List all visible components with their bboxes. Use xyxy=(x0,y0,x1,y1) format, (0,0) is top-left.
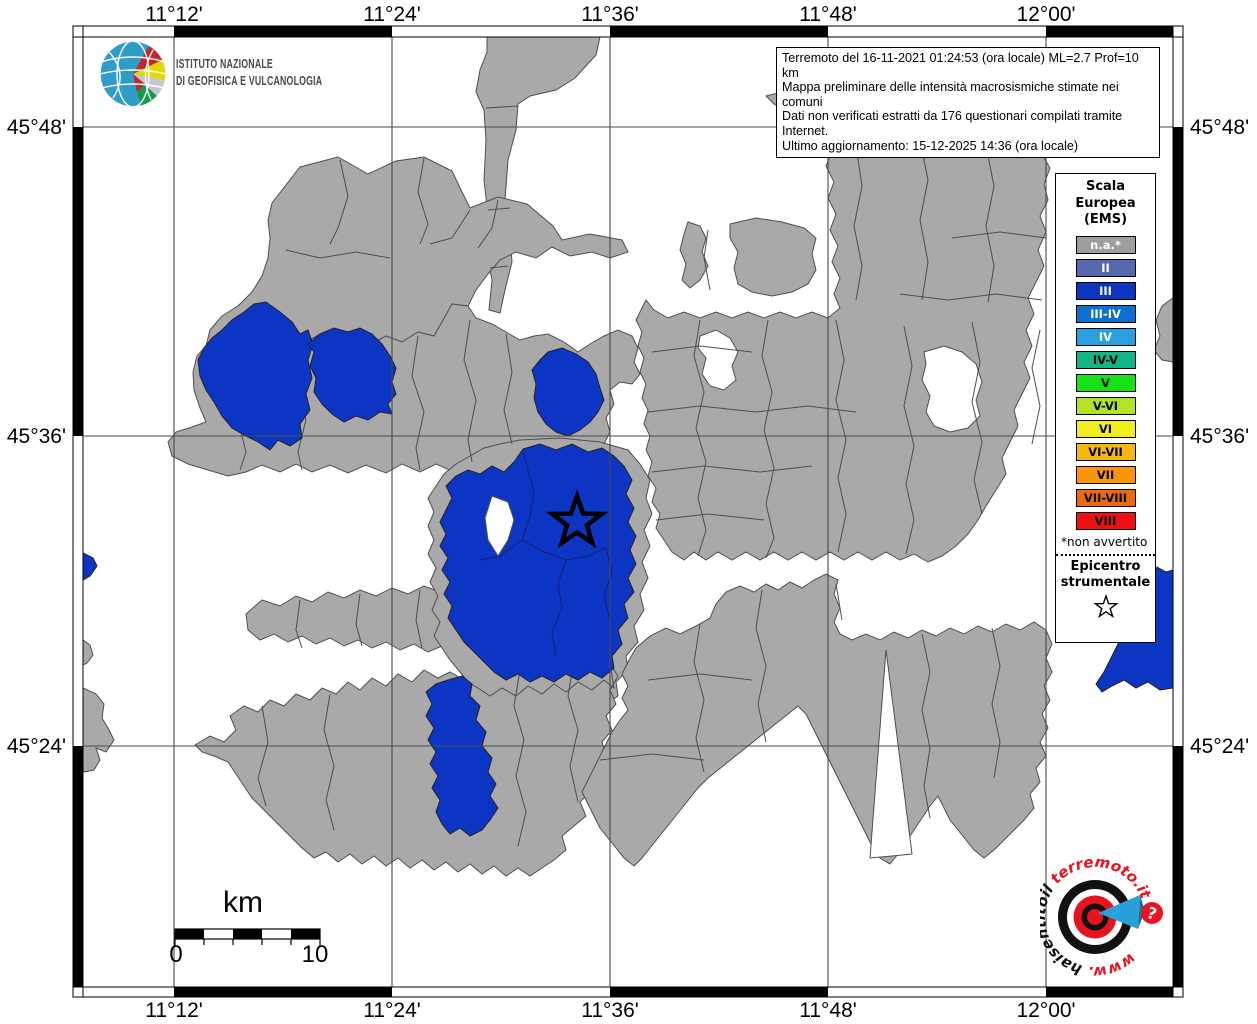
legend-swatch: V xyxy=(1076,374,1136,392)
legend-swatch: IV-V xyxy=(1076,351,1136,369)
municipality-shape xyxy=(1154,298,1173,362)
legend-title-line: Europea xyxy=(1056,196,1155,213)
left-axis-label: 45°36' xyxy=(2,425,66,449)
legend-swatch: III xyxy=(1076,282,1136,300)
right-axis-label: 45°48' xyxy=(1190,116,1249,140)
scale-bar xyxy=(175,929,320,946)
right-axis-label: 45°24' xyxy=(1190,735,1249,759)
legend-swatches: n.a.* II III III-IV IV IV-V V V-VI VI VI… xyxy=(1056,236,1155,530)
legend-swatch: n.a.* xyxy=(1076,236,1136,254)
municipality-shape xyxy=(83,688,114,772)
top-axis-label: 11°24' xyxy=(363,3,421,27)
municipality-intensity-iii xyxy=(440,444,636,682)
municipality-shapes xyxy=(83,37,1173,876)
watermark-www: www. xyxy=(1087,950,1139,982)
municipality-shape xyxy=(730,218,816,296)
ingv-globe-icon xyxy=(99,40,167,108)
ingv-name-line1: ISTITUTO NAZIONALE xyxy=(176,56,322,73)
earthquake-intensity-map-screenshot: 11°12' 11°24' 11°36' 11°48' 12°00' 11°12… xyxy=(0,0,1257,1024)
legend-swatch: VI-VII xyxy=(1076,443,1136,461)
legend-swatch: VIII xyxy=(1076,512,1136,530)
epicenter-legend-label: Epicentro strumentale xyxy=(1056,559,1155,591)
legend-swatch: VII xyxy=(1076,466,1136,484)
ingv-name-line2: DI GEOFISICA E VULCANOLOGIA xyxy=(176,73,322,90)
left-axis-label: 45°48' xyxy=(2,116,66,140)
municipality-shape xyxy=(83,640,93,665)
ingv-logo: ISTITUTO NAZIONALE DI GEOFISICA E VULCAN… xyxy=(99,40,385,108)
epicenter-legend-line: Epicentro xyxy=(1056,559,1155,575)
top-axis-label: 11°48' xyxy=(799,3,857,27)
legend-swatch: VII-VIII xyxy=(1076,489,1136,507)
legend-swatch: IV xyxy=(1076,328,1136,346)
bottom-axis-label: 11°12' xyxy=(145,999,203,1023)
legend-footnote: *non avvertito xyxy=(1061,535,1155,549)
scale-bar-end-label: 10 xyxy=(300,941,330,969)
info-line-updated: Ultimo aggiornamento: 15-12-2025 14:36 (… xyxy=(782,139,1154,154)
bottom-axis-label: 11°24' xyxy=(363,999,421,1023)
haisentitoilterremoto-logo: ? www. haisentitoil terremoto.it xyxy=(1040,853,1172,989)
bottom-axis-label: 11°36' xyxy=(581,999,639,1023)
top-axis-label: 11°12' xyxy=(145,3,203,27)
legend-title: Scala Europea (EMS) xyxy=(1056,179,1155,229)
municipality-shape xyxy=(582,574,1052,866)
earthquake-info-box: Terremoto del 16-11-2021 01:24:53 (ora l… xyxy=(776,47,1160,158)
epicenter-legend-star-icon xyxy=(1093,594,1119,620)
right-axis-label: 45°36' xyxy=(1190,425,1249,449)
municipality-shape xyxy=(195,664,618,876)
legend-swatch: II xyxy=(1076,259,1136,277)
bottom-axis-label: 12°00' xyxy=(1016,999,1075,1023)
legend-swatch: III-IV xyxy=(1076,305,1136,323)
legend-title-line: (EMS) xyxy=(1056,212,1155,229)
scale-bar-unit-label: km xyxy=(211,886,275,920)
info-line-map: Mappa preliminare delle intensità macros… xyxy=(782,80,1154,109)
municipality-shape xyxy=(476,37,600,313)
top-axis-label: 12°00' xyxy=(1016,3,1075,27)
ems-scale-legend: Scala Europea (EMS) n.a.* II III III-IV … xyxy=(1055,173,1156,643)
municipality-shape xyxy=(680,222,708,288)
municipality-intensity-iii xyxy=(83,553,97,580)
info-line-event: Terremoto del 16-11-2021 01:24:53 (ora l… xyxy=(782,51,1154,80)
haisentitoilterremoto-logo-icon: ? www. haisentitoil terremoto.it xyxy=(1040,853,1172,989)
left-axis-label: 45°24' xyxy=(2,735,66,759)
top-axis-label: 11°36' xyxy=(581,3,639,27)
epicenter-legend-line: strumentale xyxy=(1056,575,1155,591)
ingv-name: ISTITUTO NAZIONALE DI GEOFISICA E VULCAN… xyxy=(176,56,322,90)
legend-swatch: V-VI xyxy=(1076,397,1136,415)
scale-bar-start-label: 0 xyxy=(166,941,186,969)
legend-swatch: VI xyxy=(1076,420,1136,438)
legend-title-line: Scala xyxy=(1056,179,1155,196)
legend-divider xyxy=(1056,554,1155,556)
info-line-data: Dati non verificati estratti da 176 ques… xyxy=(782,109,1154,138)
municipality-shape xyxy=(636,92,1050,562)
bottom-axis-label: 11°48' xyxy=(799,999,857,1023)
